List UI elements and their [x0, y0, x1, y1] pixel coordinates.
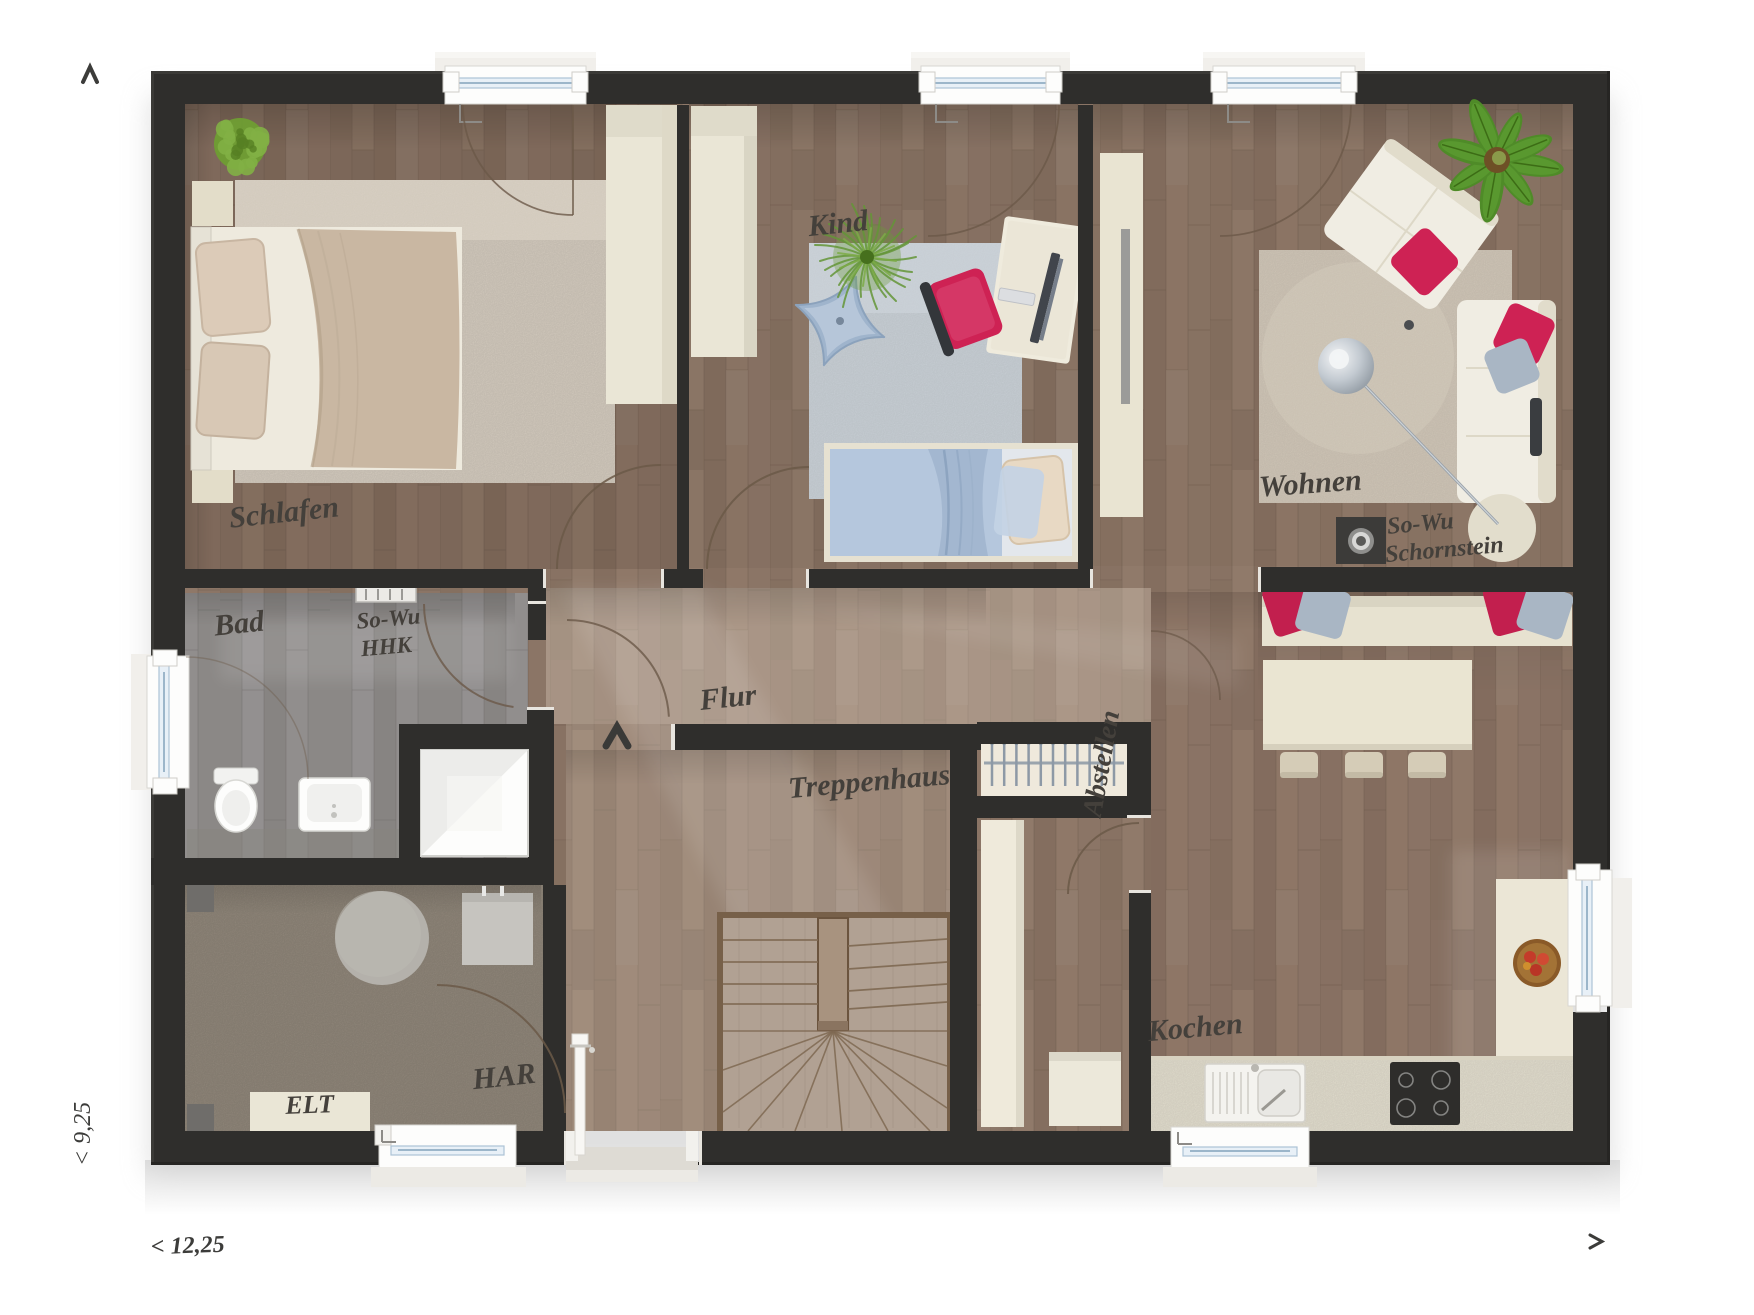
svg-text:Kind: Kind [805, 204, 870, 243]
svg-text:Bad: Bad [211, 604, 266, 642]
svg-text:HAR: HAR [470, 1057, 537, 1097]
svg-text:ELT: ELT [284, 1089, 336, 1120]
svg-text:< 9,25: < 9,25 [70, 1102, 96, 1166]
svg-text:Flur: Flur [697, 678, 758, 717]
svg-text:HHK: HHK [359, 632, 415, 662]
svg-text:< 12,25: < 12,25 [150, 1232, 225, 1261]
